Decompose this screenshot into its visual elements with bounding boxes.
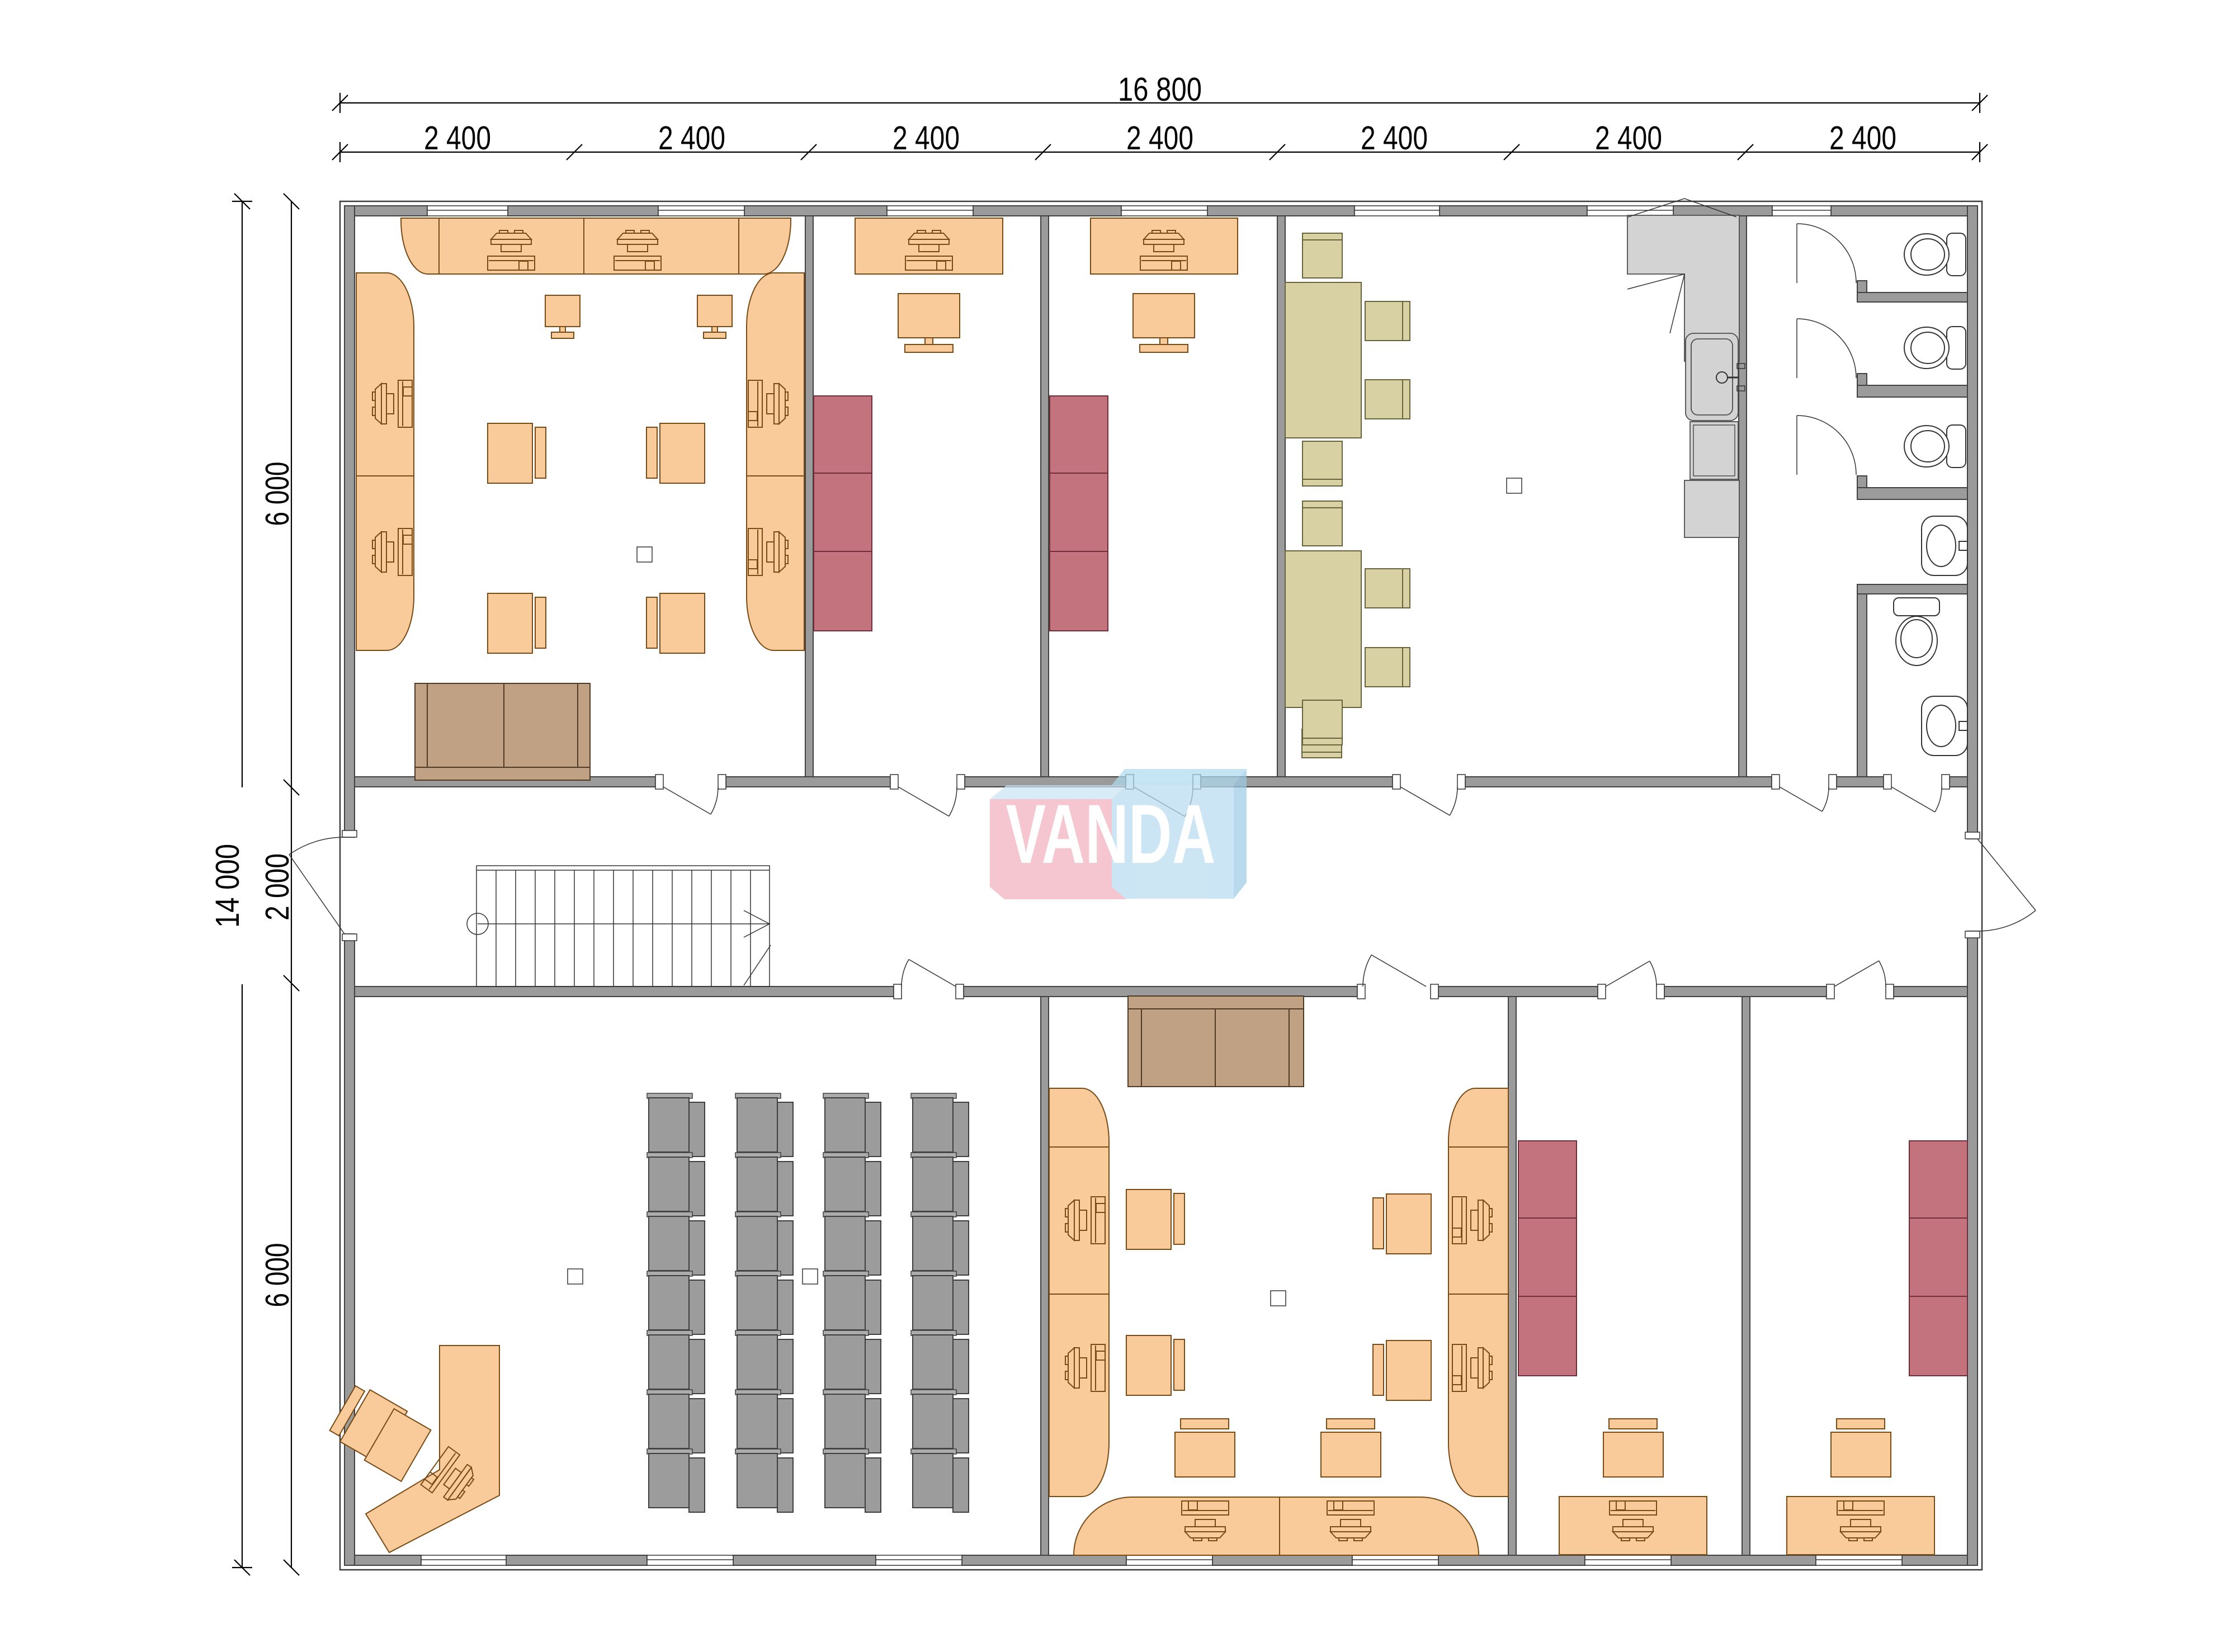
svg-text:6 000: 6 000 <box>259 462 296 526</box>
svg-text:2 400: 2 400 <box>658 120 725 157</box>
svg-text:14 000: 14 000 <box>209 844 246 928</box>
svg-text:VANDA: VANDA <box>1006 787 1216 881</box>
svg-text:6 000: 6 000 <box>259 1243 296 1308</box>
svg-text:2 400: 2 400 <box>1361 120 1428 157</box>
svg-text:2 400: 2 400 <box>1595 120 1662 157</box>
svg-text:2 000: 2 000 <box>259 853 296 921</box>
svg-text:2 400: 2 400 <box>893 120 960 157</box>
svg-text:2 400: 2 400 <box>1829 120 1896 157</box>
svg-text:2 400: 2 400 <box>424 120 491 157</box>
svg-text:16 800: 16 800 <box>1118 71 1202 108</box>
svg-text:2 400: 2 400 <box>1126 120 1193 157</box>
